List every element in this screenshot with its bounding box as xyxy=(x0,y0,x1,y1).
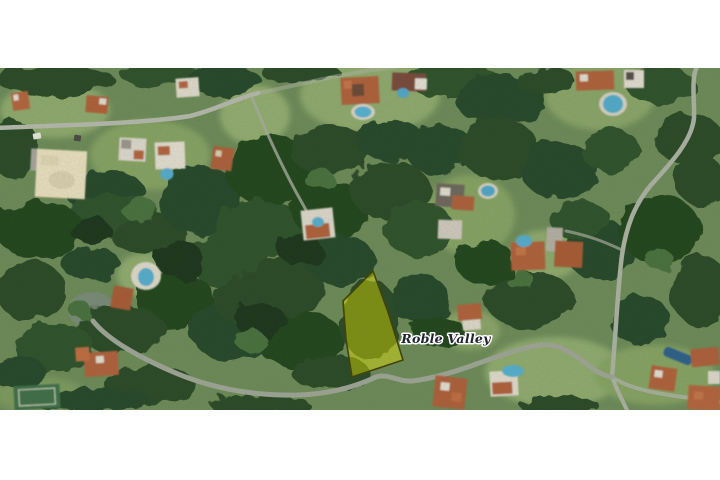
top-letterbox xyxy=(0,0,720,68)
aerial-photo-canvas: Roble Valley xyxy=(0,68,720,410)
bottom-letterbox xyxy=(0,410,720,480)
listing-photo-page: Roble Valley xyxy=(0,0,720,480)
aerial-photo: Roble Valley xyxy=(0,68,720,410)
neighborhood-label: Roble Valley xyxy=(400,331,491,346)
